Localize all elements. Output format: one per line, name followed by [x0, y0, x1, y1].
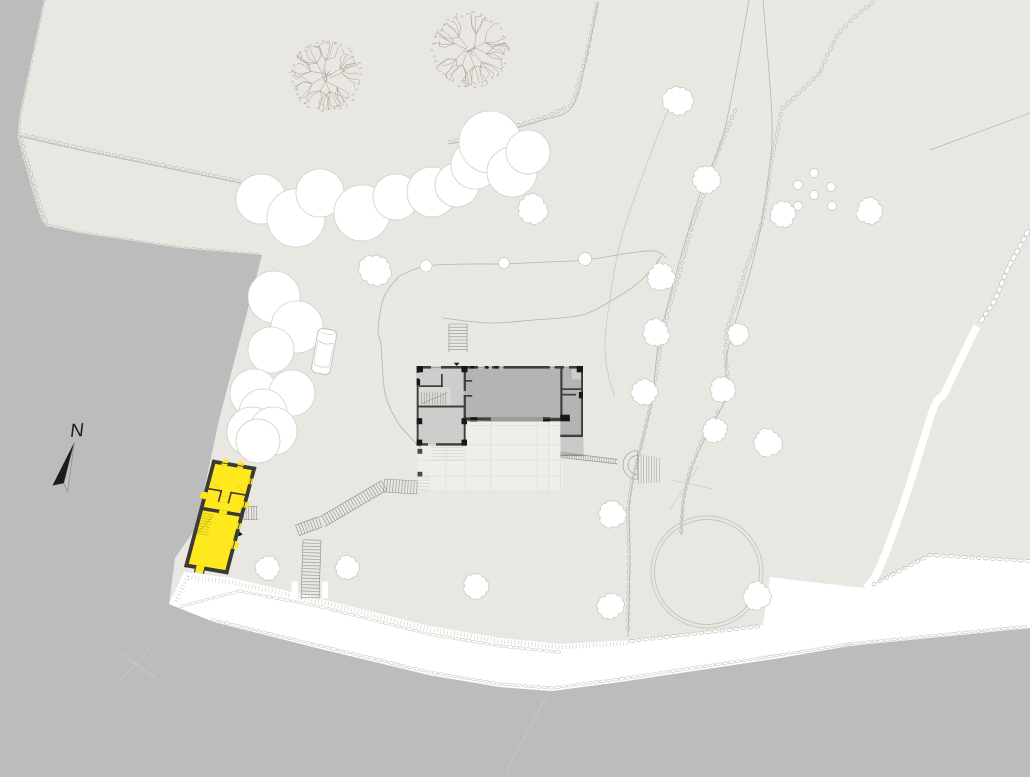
svg-text:N: N: [69, 420, 84, 442]
